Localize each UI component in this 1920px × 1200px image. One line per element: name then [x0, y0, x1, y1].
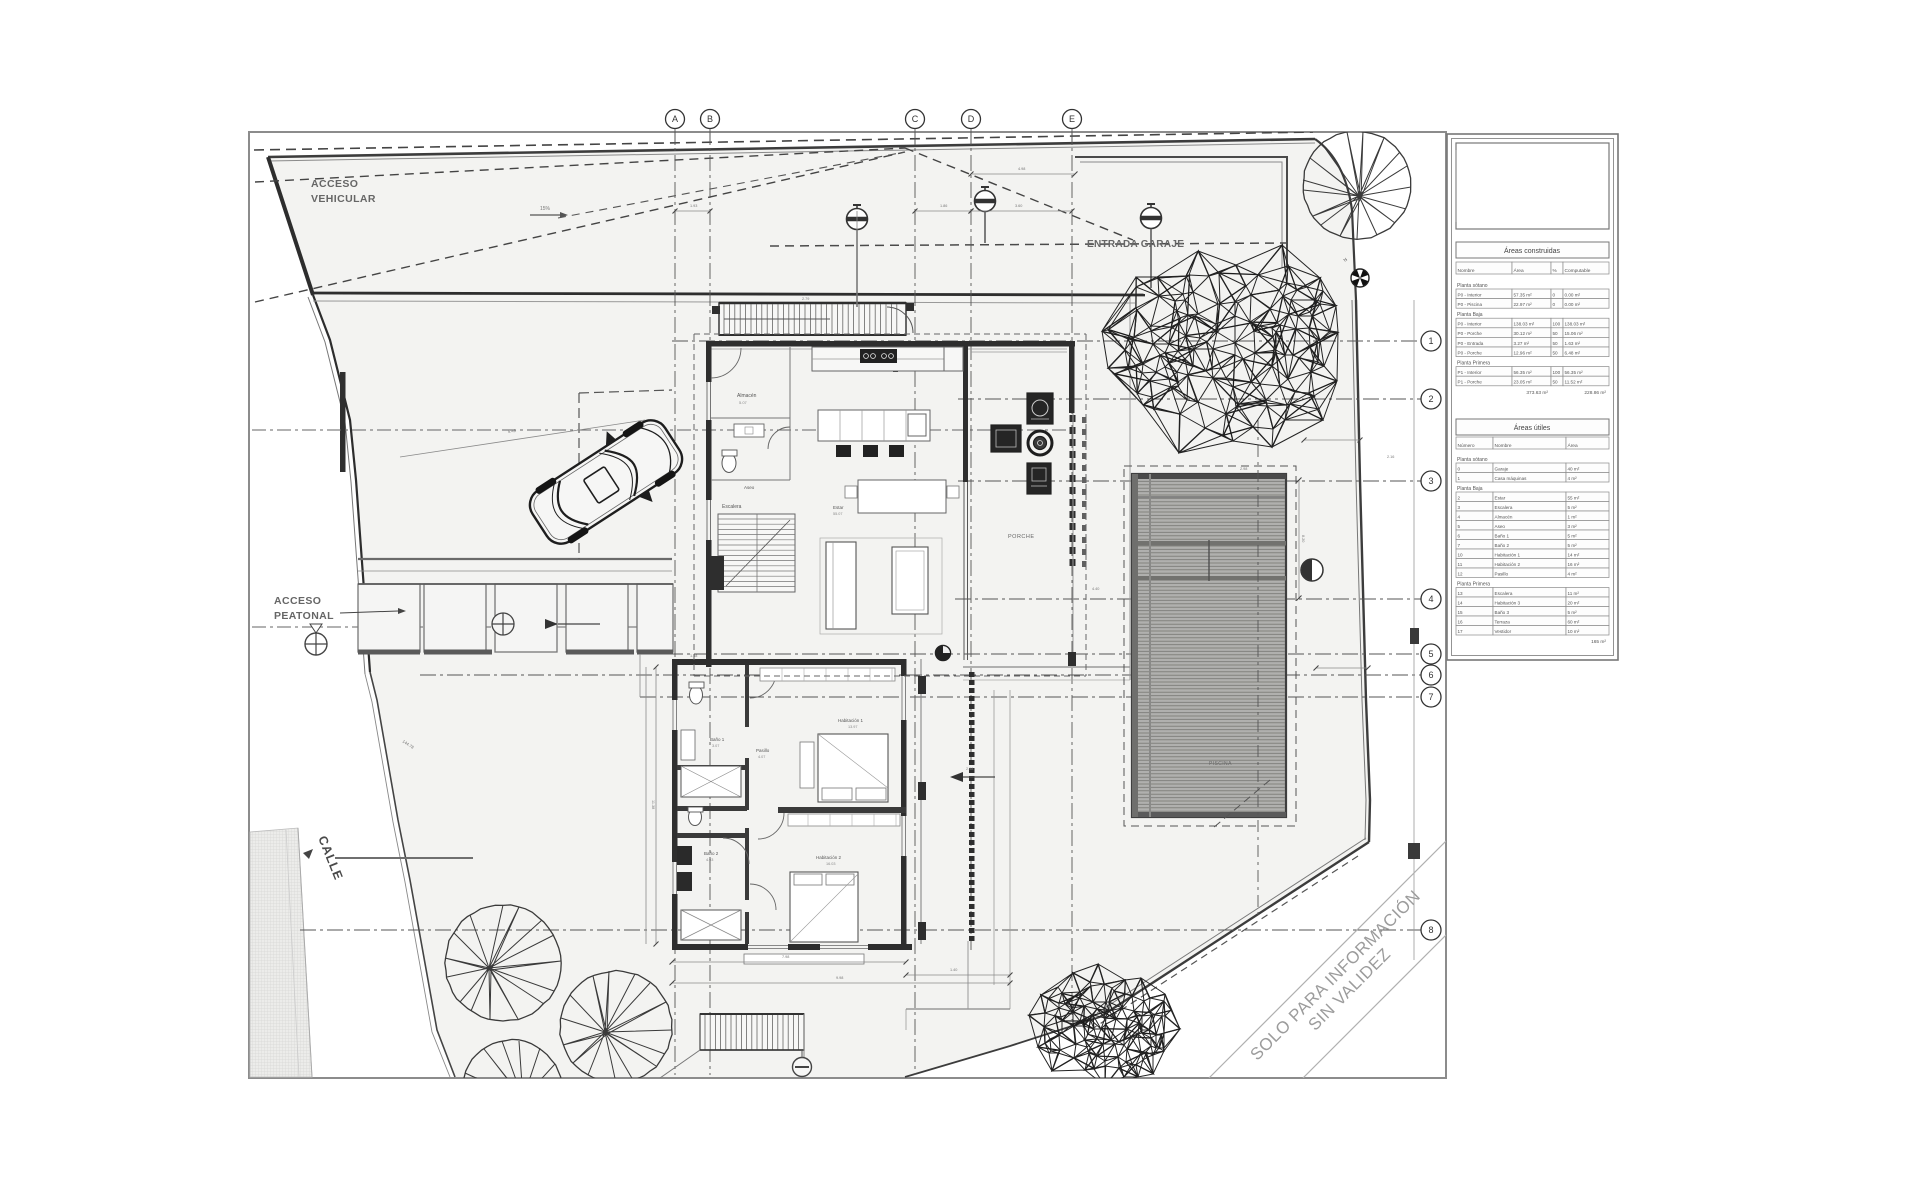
svg-text:1 m²: 1 m²: [1568, 514, 1578, 519]
svg-text:Pasillo: Pasillo: [1495, 571, 1509, 576]
svg-text:Baño 1: Baño 1: [1495, 533, 1510, 538]
svg-text:9.98: 9.98: [836, 976, 843, 980]
svg-text:3: 3: [1458, 505, 1461, 510]
svg-text:138.03 m²: 138.03 m²: [1514, 322, 1535, 327]
svg-text:6: 6: [1428, 670, 1433, 680]
svg-text:50: 50: [1553, 341, 1559, 346]
svg-text:11.38: 11.38: [651, 800, 655, 809]
svg-text:B: B: [707, 114, 713, 124]
svg-text:Área: Área: [1514, 267, 1524, 274]
svg-text:3.60: 3.60: [1015, 204, 1022, 208]
svg-text:Casa máquinas: Casa máquinas: [1495, 476, 1528, 481]
svg-text:Escalera: Escalera: [1495, 591, 1513, 596]
svg-text:Terraza: Terraza: [1495, 619, 1511, 624]
svg-text:P0 - Piscina: P0 - Piscina: [1458, 302, 1483, 307]
svg-text:PISCINA: PISCINA: [1209, 761, 1232, 767]
svg-text:2: 2: [1428, 394, 1433, 404]
svg-text:Vestidor: Vestidor: [1495, 629, 1512, 634]
svg-text:1.86: 1.86: [940, 204, 947, 208]
svg-text:15%: 15%: [540, 206, 551, 212]
svg-text:55.07: 55.07: [833, 512, 843, 516]
svg-text:0: 0: [1553, 302, 1556, 307]
svg-text:%: %: [1553, 268, 1558, 274]
svg-text:50: 50: [1553, 350, 1559, 355]
svg-text:40 m²: 40 m²: [1568, 466, 1580, 471]
svg-text:373.63 m²: 373.63 m²: [1526, 390, 1548, 396]
svg-text:Aseo: Aseo: [744, 485, 755, 490]
svg-text:6.48 m²: 6.48 m²: [1565, 350, 1581, 355]
svg-text:4 m²: 4 m²: [1568, 571, 1578, 576]
svg-text:4.03: 4.03: [706, 858, 713, 862]
svg-text:Habitación 2: Habitación 2: [1495, 562, 1521, 567]
svg-text:Escalera: Escalera: [722, 504, 742, 510]
svg-text:Planta Primera: Planta Primera: [1457, 582, 1490, 588]
svg-text:50: 50: [1553, 380, 1559, 385]
svg-text:6: 6: [1458, 533, 1461, 538]
svg-text:Nombre: Nombre: [1458, 268, 1475, 274]
svg-text:55 m²: 55 m²: [1568, 495, 1580, 500]
svg-text:22.97 m²: 22.97 m²: [1514, 302, 1533, 307]
svg-text:0: 0: [1458, 466, 1461, 471]
svg-text:11.52 m²: 11.52 m²: [1565, 380, 1583, 385]
svg-text:12.96 m²: 12.96 m²: [1514, 350, 1533, 355]
svg-text:5 m²: 5 m²: [1568, 533, 1578, 538]
svg-text:30.12 m²: 30.12 m²: [1514, 331, 1533, 336]
svg-text:7: 7: [1458, 543, 1461, 548]
svg-text:Planta Baja: Planta Baja: [1457, 486, 1483, 492]
svg-text:Garaje: Garaje: [1495, 466, 1509, 471]
svg-text:138.03 m²: 138.03 m²: [1565, 322, 1586, 327]
svg-text:12: 12: [1458, 571, 1464, 576]
svg-text:16.03: 16.03: [826, 862, 836, 866]
svg-text:Área: Área: [1568, 442, 1578, 449]
svg-text:14 m²: 14 m²: [1568, 552, 1580, 557]
svg-text:Nombre: Nombre: [1495, 443, 1512, 449]
svg-text:5 m²: 5 m²: [1568, 610, 1578, 615]
svg-text:Baño 2: Baño 2: [704, 851, 719, 856]
svg-text:Estar: Estar: [1495, 495, 1506, 500]
svg-text:P1 - Interior: P1 - Interior: [1458, 370, 1482, 375]
svg-text:P0 - Interior: P0 - Interior: [1458, 322, 1482, 327]
svg-text:2: 2: [1458, 495, 1461, 500]
svg-text:100: 100: [1553, 370, 1561, 375]
svg-text:3.27 m²: 3.27 m²: [1514, 341, 1530, 346]
svg-text:56.35 m²: 56.35 m²: [1565, 370, 1584, 375]
svg-text:13.97: 13.97: [848, 725, 858, 729]
svg-text:10 m²: 10 m²: [1568, 629, 1580, 634]
svg-text:Baño 1: Baño 1: [710, 737, 725, 742]
svg-text:VEHICULAR: VEHICULAR: [311, 193, 376, 205]
svg-text:7: 7: [1428, 692, 1433, 702]
svg-text:2.98: 2.98: [1240, 467, 1247, 471]
svg-text:3.07: 3.07: [712, 744, 719, 748]
svg-text:11: 11: [1458, 562, 1463, 567]
svg-text:4.40: 4.40: [1092, 587, 1099, 591]
svg-text:Habitación 1: Habitación 1: [1495, 552, 1521, 557]
svg-text:14: 14: [1458, 600, 1464, 605]
svg-text:P0 - Porche: P0 - Porche: [1458, 350, 1483, 355]
svg-text:D: D: [968, 114, 975, 124]
svg-text:5: 5: [1458, 524, 1461, 529]
svg-text:Planta Primera: Planta Primera: [1457, 361, 1490, 367]
svg-text:Habitación 2: Habitación 2: [816, 855, 842, 860]
svg-text:C: C: [912, 114, 919, 124]
svg-text:23.05 m²: 23.05 m²: [1514, 380, 1533, 385]
svg-text:Planta Baja: Planta Baja: [1457, 312, 1483, 318]
svg-text:E: E: [1069, 114, 1075, 124]
svg-text:5 m²: 5 m²: [1568, 543, 1578, 548]
svg-text:8.20: 8.20: [1301, 535, 1305, 542]
svg-text:15.06 m²: 15.06 m²: [1565, 331, 1584, 336]
svg-text:7.98: 7.98: [782, 955, 789, 959]
svg-text:11 m²: 11 m²: [1568, 591, 1580, 596]
svg-text:15: 15: [1458, 610, 1464, 615]
svg-text:8: 8: [1428, 925, 1433, 935]
svg-text:Áreas útiles: Áreas útiles: [1514, 423, 1551, 432]
svg-text:56.35 m²: 56.35 m²: [1514, 370, 1533, 375]
svg-text:Pasillo: Pasillo: [756, 748, 770, 753]
svg-text:Habitación 3: Habitación 3: [1495, 600, 1521, 605]
svg-text:Planta sótano: Planta sótano: [1457, 457, 1488, 463]
svg-text:5.07: 5.07: [739, 400, 748, 405]
svg-text:ACCESO: ACCESO: [274, 595, 321, 607]
svg-text:P0 - Porche: P0 - Porche: [1458, 331, 1483, 336]
svg-text:0.00 m²: 0.00 m²: [1565, 292, 1581, 297]
svg-text:P0 - Interior: P0 - Interior: [1458, 292, 1482, 297]
svg-text:1.40: 1.40: [950, 968, 957, 972]
svg-text:1: 1: [1428, 336, 1433, 346]
svg-text:ACCESO: ACCESO: [311, 178, 358, 190]
svg-text:Escalera: Escalera: [1495, 505, 1513, 510]
svg-text:10: 10: [1458, 552, 1464, 557]
svg-text:57.35 m²: 57.35 m²: [1514, 292, 1533, 297]
svg-text:13: 13: [1458, 591, 1464, 596]
svg-text:Número: Número: [1458, 443, 1475, 449]
svg-text:Almacén: Almacén: [1495, 514, 1513, 519]
svg-text:16 m²: 16 m²: [1568, 562, 1580, 567]
svg-text:P0 - Entrada: P0 - Entrada: [1458, 341, 1484, 346]
svg-text:20 m²: 20 m²: [1568, 600, 1580, 605]
svg-text:P1 - Porche: P1 - Porche: [1458, 380, 1483, 385]
svg-text:3: 3: [1428, 476, 1433, 486]
svg-text:0: 0: [1553, 292, 1556, 297]
svg-text:4: 4: [1458, 514, 1461, 519]
svg-text:1.38: 1.38: [690, 654, 697, 658]
svg-text:4: 4: [1428, 594, 1433, 604]
svg-text:3 m²: 3 m²: [1568, 524, 1578, 529]
svg-text:4.98: 4.98: [1018, 167, 1025, 171]
svg-text:Almacén: Almacén: [737, 393, 757, 399]
svg-text:2.79: 2.79: [802, 297, 809, 301]
svg-text:4.07: 4.07: [758, 755, 765, 759]
svg-text:60 m²: 60 m²: [1568, 619, 1580, 624]
svg-text:4 m²: 4 m²: [1568, 476, 1578, 481]
svg-text:50: 50: [1553, 331, 1559, 336]
svg-text:Aseo: Aseo: [1495, 524, 1506, 529]
svg-text:Áreas construidas: Áreas construidas: [1504, 246, 1561, 255]
svg-text:1.93: 1.93: [690, 204, 697, 208]
svg-text:Baño 2: Baño 2: [1495, 543, 1510, 548]
svg-text:100: 100: [1553, 322, 1561, 327]
svg-text:PEATONAL: PEATONAL: [274, 610, 334, 622]
svg-text:2.98: 2.98: [966, 767, 973, 771]
svg-text:2.16: 2.16: [1387, 455, 1394, 459]
svg-text:0.00 m²: 0.00 m²: [1565, 302, 1581, 307]
svg-text:5 m²: 5 m²: [1568, 505, 1578, 510]
svg-text:228.86 m²: 228.86 m²: [1584, 390, 1606, 396]
svg-text:5: 5: [1428, 649, 1433, 659]
svg-text:A: A: [672, 114, 678, 124]
svg-text:Computable: Computable: [1565, 268, 1591, 274]
svg-text:1: 1: [1458, 476, 1461, 481]
svg-text:ENTRADA GARAJE: ENTRADA GARAJE: [1087, 239, 1184, 250]
svg-text:1.63 m²: 1.63 m²: [1565, 341, 1581, 346]
svg-text:165 m²: 165 m²: [1591, 639, 1606, 645]
svg-text:PORCHE: PORCHE: [1008, 534, 1035, 540]
svg-text:Baño 3: Baño 3: [1495, 610, 1510, 615]
svg-text:Planta sótano: Planta sótano: [1457, 283, 1488, 289]
svg-text:16: 16: [1458, 619, 1464, 624]
svg-text:Habitación 1: Habitación 1: [838, 718, 864, 723]
svg-text:Estar: Estar: [833, 505, 844, 510]
svg-text:17: 17: [1458, 629, 1464, 634]
